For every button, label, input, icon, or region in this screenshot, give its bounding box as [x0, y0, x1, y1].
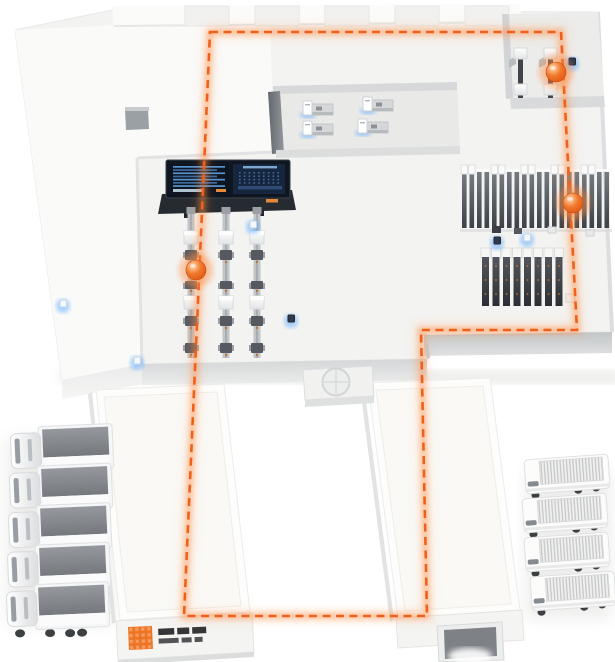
rack-cap — [551, 165, 558, 174]
middle-room — [268, 82, 460, 158]
cabinet — [523, 248, 532, 306]
van-ribbed-roof — [537, 496, 601, 523]
truck-cab — [9, 472, 40, 508]
screen-dot — [239, 182, 241, 184]
robot-indicator — [225, 354, 227, 356]
van-ribbed-roof — [545, 574, 609, 601]
truck-wheel — [77, 628, 87, 636]
left-corridor-roof-panel — [104, 392, 241, 612]
roof-notch — [125, 109, 149, 130]
workstation-device — [303, 101, 312, 115]
van-windshield — [534, 598, 545, 604]
agv-marker-highlight — [550, 66, 556, 70]
workstation-desk-edge — [312, 132, 333, 135]
machine-head — [514, 48, 527, 59]
agv-marker-highlight — [567, 197, 573, 201]
truck-wheel — [65, 629, 75, 637]
roof-notch-top — [125, 107, 149, 111]
cabinet-led — [485, 265, 487, 267]
cabinet — [534, 248, 543, 306]
van-ribbed-roof — [539, 535, 603, 562]
robot-indicator — [225, 261, 227, 263]
screen-dot — [263, 182, 265, 184]
workstation-desk-edge — [367, 130, 388, 133]
logo-text-segment — [182, 637, 192, 642]
cabinet — [481, 248, 490, 306]
van-windshield — [528, 559, 539, 565]
screen-dot — [258, 179, 260, 181]
robot-unit — [220, 316, 232, 326]
rack-column — [522, 172, 527, 228]
dashboard-base-indicator — [266, 199, 278, 203]
cabinet-body — [535, 257, 542, 306]
screen-right-header — [243, 166, 277, 168]
cabinet-led — [506, 293, 508, 295]
equipment-box — [548, 227, 556, 233]
truck-box-top — [39, 545, 106, 576]
screen-right-footer — [238, 186, 282, 189]
cabinet-led — [495, 265, 497, 267]
screen-dot — [244, 182, 246, 184]
right-truck-fleet — [522, 454, 615, 616]
screen-dot — [239, 179, 241, 181]
logo-text-segment — [159, 638, 179, 644]
cabinet-led — [527, 293, 529, 295]
device-vent — [360, 122, 365, 123]
screen-dot — [263, 175, 265, 177]
rack-cap — [529, 165, 536, 174]
rack-column — [552, 172, 557, 228]
workstation-monitor-icon — [316, 127, 322, 131]
truck-box-top — [38, 585, 105, 616]
workstation-monitor-icon — [316, 107, 322, 111]
equipment-box — [492, 226, 501, 233]
screen-dot — [263, 172, 265, 174]
machine-foot — [514, 84, 527, 95]
screen-dot — [253, 182, 255, 184]
robot-unit — [220, 343, 232, 353]
workstation-device — [358, 119, 367, 133]
cabinet-body — [503, 257, 510, 306]
cabinet-led — [558, 279, 560, 281]
cabinet-led — [485, 279, 487, 281]
equipment-box — [586, 230, 594, 236]
screen-dot — [258, 175, 260, 177]
sensor-device — [56, 299, 70, 313]
rack-column — [530, 172, 535, 228]
sensor-box-icon — [250, 221, 257, 228]
cabinet-body — [482, 257, 489, 306]
cabinet — [513, 248, 522, 306]
agv-marker-ball-icon — [546, 62, 566, 82]
robot-indicator — [256, 290, 258, 292]
rack-cap — [461, 165, 468, 174]
cabinet-led — [516, 279, 518, 281]
agv-marker — [539, 55, 573, 89]
rack-column — [545, 172, 550, 228]
screen-dot — [258, 182, 260, 184]
logo-text-segment — [195, 637, 203, 642]
factory-illustration — [0, 0, 615, 662]
screen-dot — [249, 172, 251, 174]
screen-dot — [239, 172, 241, 174]
sensor-device — [130, 356, 144, 370]
truck-wheel — [45, 629, 55, 637]
cabinet-led — [537, 265, 539, 267]
rack-column — [477, 172, 482, 228]
equipment-box — [514, 228, 522, 234]
rack-column — [507, 172, 512, 228]
roof-beam — [325, 6, 369, 26]
robot-unit — [251, 316, 263, 326]
truck-cab — [8, 512, 39, 548]
sensor-box-icon — [60, 300, 67, 307]
device-vent — [365, 100, 370, 101]
dock-door — [437, 622, 504, 662]
cabinet-led — [558, 265, 560, 267]
van-ribbed-roof — [539, 457, 603, 484]
cabinet-body — [493, 257, 500, 306]
cabinet-top — [502, 248, 511, 258]
rack-cap — [521, 165, 528, 174]
screen-dot — [249, 182, 251, 184]
cabinet-top — [544, 248, 553, 258]
isometric-scene — [0, 0, 615, 662]
truck-cab — [6, 591, 37, 627]
screen-dot — [263, 179, 265, 181]
screen-dot — [249, 175, 251, 177]
screen-dot — [273, 175, 275, 177]
workstation-device — [303, 121, 312, 135]
agv-marker-highlight — [190, 264, 196, 268]
left-truck-fleet — [6, 423, 114, 639]
screen-dot — [277, 179, 279, 181]
screen-dot — [253, 172, 255, 174]
cabinet — [502, 248, 511, 306]
screen-dot — [253, 175, 255, 177]
sensor-device — [490, 236, 504, 250]
screen-dot — [268, 179, 270, 181]
sensor-box-icon — [134, 357, 141, 364]
conveyor-station-top — [219, 296, 233, 300]
sensor-device — [246, 220, 260, 234]
conveyor-endcap — [222, 207, 231, 214]
screen-dot — [277, 175, 279, 177]
truck-box-top — [40, 506, 107, 537]
orange-pixel-grid-logo-icon — [128, 626, 153, 650]
sensor-device — [284, 314, 298, 328]
rack-column — [515, 172, 520, 228]
rack-column — [590, 172, 595, 228]
roof-beam — [395, 6, 439, 26]
cabinet-led — [485, 293, 487, 295]
roof-beam — [185, 6, 229, 26]
rack-cap — [589, 165, 596, 174]
screen-dot — [249, 179, 251, 181]
rack-cap — [581, 165, 588, 174]
rack-column — [605, 172, 610, 228]
cabinet-top — [513, 248, 522, 258]
agv-marker — [556, 186, 590, 220]
screen-alert-cell — [216, 189, 226, 192]
logo-text-segment — [177, 627, 189, 634]
device-vent — [305, 124, 310, 125]
cabinet — [544, 248, 553, 306]
cabinet-led — [495, 279, 497, 281]
robot-indicator — [256, 354, 258, 356]
truck-box-top — [41, 466, 108, 497]
cabinet-led — [516, 265, 518, 267]
robot-unit — [251, 250, 263, 260]
screen-dot — [244, 172, 246, 174]
rack-column — [597, 172, 602, 228]
cabinet — [492, 248, 501, 306]
rack-cap — [469, 165, 476, 174]
screen-dot — [239, 175, 241, 177]
cabinet-led — [506, 279, 508, 281]
sensor-box-icon — [524, 234, 531, 241]
cabinet-led — [527, 265, 529, 267]
roof-beam — [255, 6, 299, 26]
robot-indicator — [256, 261, 258, 263]
rack-column — [470, 172, 475, 228]
logo-text-segment — [192, 627, 206, 634]
rack-column — [500, 172, 505, 228]
workstation-desk-edge — [312, 112, 333, 115]
screen-dot — [244, 175, 246, 177]
cabinet-led — [516, 293, 518, 295]
cabinet-led — [558, 293, 560, 295]
screen-data-line — [173, 182, 217, 184]
cabinet-top — [523, 248, 532, 258]
truck-cab — [7, 551, 38, 587]
robot-unit — [220, 250, 232, 260]
cabinet — [555, 248, 564, 306]
truck-box-top — [42, 427, 109, 458]
cabinet-led — [548, 265, 550, 267]
cabinet-led — [495, 293, 497, 295]
cabinet-led — [506, 265, 508, 267]
cabinet-led — [548, 279, 550, 281]
screen-dot — [277, 182, 279, 184]
rooftop-vent-unit — [303, 366, 374, 407]
truck-cab — [10, 433, 41, 469]
screen-dot — [258, 172, 260, 174]
cabinet-led — [537, 279, 539, 281]
cabinet-top — [555, 248, 564, 258]
screen-dot — [268, 172, 270, 174]
rack-cap — [499, 165, 506, 174]
van-windshield — [528, 481, 539, 487]
sensor-box-icon — [288, 315, 295, 322]
robot-indicator — [256, 327, 258, 329]
cabinet-body — [556, 257, 563, 306]
rack-column — [485, 172, 490, 228]
robot-unit — [251, 281, 263, 289]
screen-dot — [273, 172, 275, 174]
agv-marker — [179, 253, 213, 287]
workstation-desk-edge — [372, 108, 393, 111]
sensor-box-icon — [494, 237, 501, 244]
screen-dot — [268, 182, 270, 184]
cabinet-top — [481, 248, 490, 258]
cabinet-led — [548, 293, 550, 295]
sensor-device — [520, 233, 534, 247]
cabinet-body — [514, 257, 521, 306]
robot-indicator — [225, 290, 227, 292]
screen-dot — [268, 175, 270, 177]
top-right-room-south-wall — [510, 96, 605, 109]
workstation-monitor-icon — [376, 103, 382, 107]
conveyor-station-top — [250, 296, 264, 300]
cabinet-body — [545, 257, 552, 306]
rack-column — [537, 172, 542, 228]
robot-indicator — [225, 327, 227, 329]
cabinet-top — [534, 248, 543, 258]
conveyor-endcap — [187, 207, 196, 214]
van-windshield — [526, 520, 537, 526]
logo-text-segment — [158, 628, 174, 635]
conveyor-station-top — [219, 231, 233, 235]
agv-marker-ball-icon — [563, 193, 583, 213]
robot-unit — [220, 281, 232, 289]
robot-unit — [251, 343, 263, 353]
conveyor-endcap — [253, 207, 262, 214]
screen-dot — [273, 179, 275, 181]
screen-dot — [244, 179, 246, 181]
device-vent — [305, 104, 310, 105]
workstation-monitor-icon — [371, 125, 377, 129]
workstation-device — [363, 97, 372, 111]
rack-column — [462, 172, 467, 228]
truck-wheel — [15, 629, 25, 637]
screen-dot — [277, 172, 279, 174]
cabinet-led — [527, 279, 529, 281]
cabinet-led — [537, 293, 539, 295]
screen-dot — [273, 182, 275, 184]
agv-marker-ball-icon — [186, 260, 206, 280]
rack-cap — [491, 165, 498, 174]
cabinet-body — [524, 257, 531, 306]
rack-column — [492, 172, 497, 228]
screen-dot — [253, 179, 255, 181]
